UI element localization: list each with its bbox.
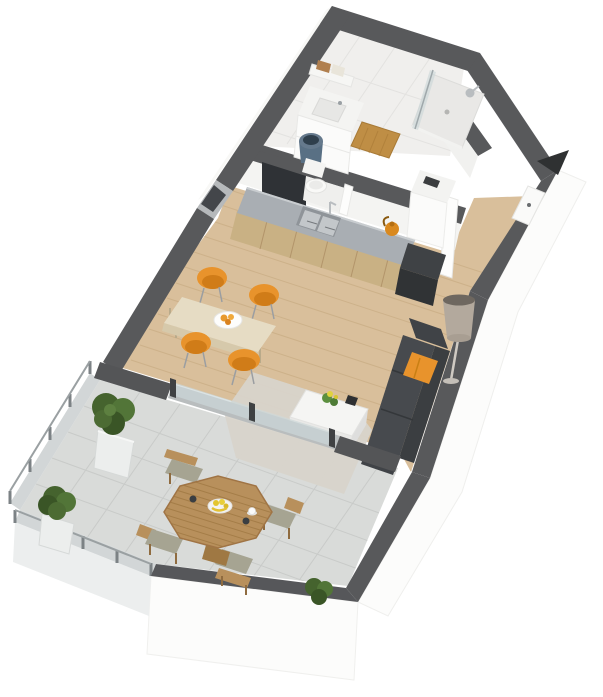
door-frame-post-left	[170, 378, 176, 398]
vanity-faucet	[338, 101, 342, 105]
lamp-base	[443, 378, 459, 384]
lamp-shade-bottom	[447, 334, 471, 342]
cup-dark-1	[190, 496, 197, 503]
lamp-shade	[443, 300, 475, 338]
toilet-seat	[309, 181, 323, 190]
door-handle	[527, 203, 531, 207]
laundry-basket	[299, 133, 323, 163]
lamp-shade-top	[443, 295, 475, 306]
basket-hole	[303, 135, 319, 145]
fruit-bowl	[208, 499, 232, 513]
floorplan-rendering	[0, 0, 603, 697]
shower-drain	[445, 110, 450, 115]
plate-with-fruit	[214, 312, 242, 329]
door-frame-post-mid	[249, 402, 255, 422]
door-frame-post-right	[329, 428, 335, 448]
cup-dark-2	[243, 518, 250, 525]
floorplan-canvas: 3D isometric rendering of a studio apart…	[0, 0, 603, 697]
